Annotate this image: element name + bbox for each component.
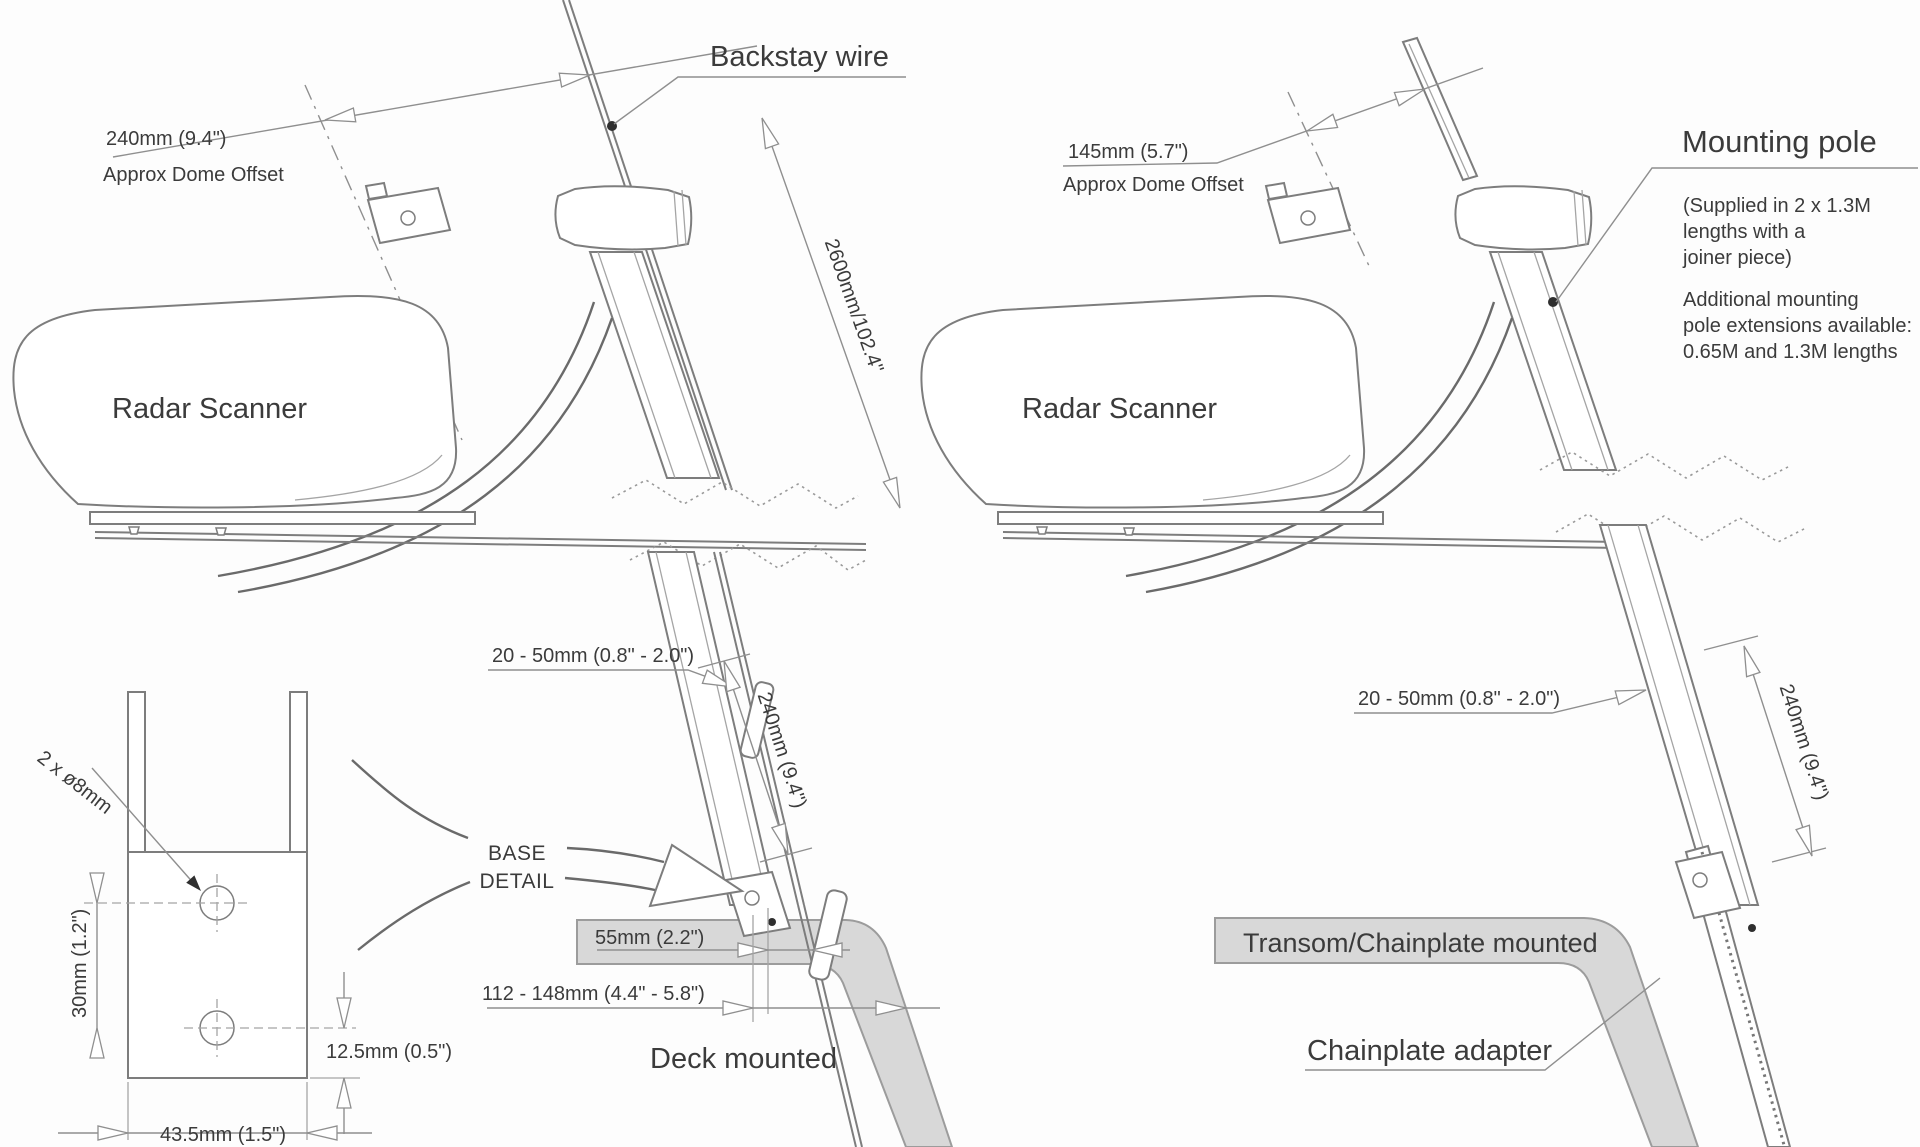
bracket-prong-right [290, 692, 307, 852]
clamp-screw [401, 211, 415, 225]
dim-arrow [1737, 644, 1760, 677]
dim-arrow [98, 1126, 128, 1140]
clearance-dim-value: 20 - 50mm (0.8" - 2.0") [1358, 688, 1560, 710]
base-detail-label-line2: DETAIL [480, 870, 555, 893]
clamp-handle [555, 186, 691, 249]
edge-distance-dim-value: 12.5mm (0.5") [326, 1041, 452, 1063]
pole-top-stub [1403, 38, 1477, 180]
tray-plate-lines [95, 532, 866, 550]
dim-extension-tick [1772, 848, 1826, 862]
clamp-tab [1266, 183, 1287, 199]
offset-dim-caption: Approx Dome Offset [103, 164, 284, 186]
pole-note2-line3: 0.65M and 1.3M lengths [1683, 341, 1898, 363]
deck-range-dim-value: 112 - 148mm (4.4" - 5.8") [482, 983, 705, 1005]
dim-arrow [1615, 683, 1648, 704]
bracket-bolt-dot [768, 918, 776, 926]
break-line [1556, 514, 1806, 542]
radar-scanner-label: Radar Scanner [1022, 393, 1217, 425]
dim-arrow [307, 1126, 337, 1140]
tray-screw [1124, 528, 1134, 535]
backstay-length-dim: 2600mm/102.4" [820, 236, 888, 376]
chainplate-adapter-label: Chainplate adapter [1307, 1035, 1552, 1067]
adapter-leader-dot [1748, 924, 1756, 932]
callout-curve-lower [358, 882, 470, 950]
pole-note2-line1: Additional mounting [1683, 289, 1859, 311]
width-dim-value: 43.5mm (1.5") [160, 1124, 286, 1146]
dome-tray [90, 512, 475, 524]
dim-arrow [90, 1028, 104, 1058]
deck-surface [577, 920, 952, 1147]
bracket-pivot-screw [1693, 873, 1707, 887]
dim-arrow [337, 998, 351, 1028]
callout-curve-upper [352, 760, 468, 838]
pole-note-line1: (Supplied in 2 x 1.3M [1683, 195, 1871, 217]
dim-arrow [337, 1078, 351, 1108]
technical-drawing: Backstay wire 240mm (9.4") Approx Dome O… [0, 0, 1920, 1147]
pole-note-line2: lengths with a [1683, 221, 1806, 243]
base-detail-label-line1: BASE [488, 842, 546, 865]
clearance-dim-value: 20 - 50mm (0.8" - 2.0") [492, 645, 694, 667]
dome-tray [998, 512, 1383, 524]
pole-wall-line [1638, 525, 1750, 905]
pole-lower-section [1600, 525, 1758, 905]
deck-offset-dim-value: 55mm (2.2") [595, 927, 704, 949]
mounting-pole-label: Mounting pole [1682, 124, 1877, 159]
dim-arrow [755, 116, 778, 149]
pole-note-line3: joiner piece) [1682, 247, 1792, 269]
radar-mounting-diagram: Backstay wire 240mm (9.4") Approx Dome O… [0, 0, 1920, 1147]
tray-screw [129, 527, 139, 534]
clamp-handle [1455, 186, 1591, 249]
offset-dim-value: 240mm (9.4") [106, 128, 226, 150]
pole-length-dim-value: 240mm (9.4") [1775, 681, 1833, 802]
clamp-tab [366, 183, 387, 199]
offset-dim-caption: Approx Dome Offset [1063, 174, 1244, 196]
bracket-pivot-screw [745, 891, 759, 905]
arrow-shaft-lower [565, 878, 655, 890]
dim-arrow [723, 1001, 753, 1015]
tray-screw [216, 528, 226, 535]
dim-arrow [1305, 114, 1338, 137]
clamp-screw [1301, 211, 1315, 225]
radar-scanner-label: Radar Scanner [112, 393, 307, 425]
dim-arrow [324, 108, 356, 127]
dim-arrow [883, 477, 906, 510]
tray-screw [1037, 527, 1047, 534]
transom-mounted-caption: Transom/Chainplate mounted [1243, 928, 1598, 958]
offset-dim-value: 145mm (5.7") [1068, 141, 1188, 163]
hole-spacing-dim-value: 30mm (1.2") [69, 909, 91, 1018]
stub-wall-line [1409, 44, 1469, 178]
deck-mounted-caption: Deck mounted [650, 1043, 837, 1075]
dim-extension-tick [1704, 636, 1758, 650]
bracket-prong-left [128, 692, 145, 852]
backstay-length-dim-line [762, 118, 900, 508]
base-detail-view [58, 692, 742, 1140]
dim-arrow [90, 873, 104, 903]
break-line [612, 480, 858, 508]
arrow-shaft-upper [567, 848, 664, 862]
pole-note2-line2: pole extensions available: [1683, 315, 1912, 337]
backstay-label-leader [614, 77, 906, 124]
backstay-wire-label: Backstay wire [710, 41, 889, 73]
